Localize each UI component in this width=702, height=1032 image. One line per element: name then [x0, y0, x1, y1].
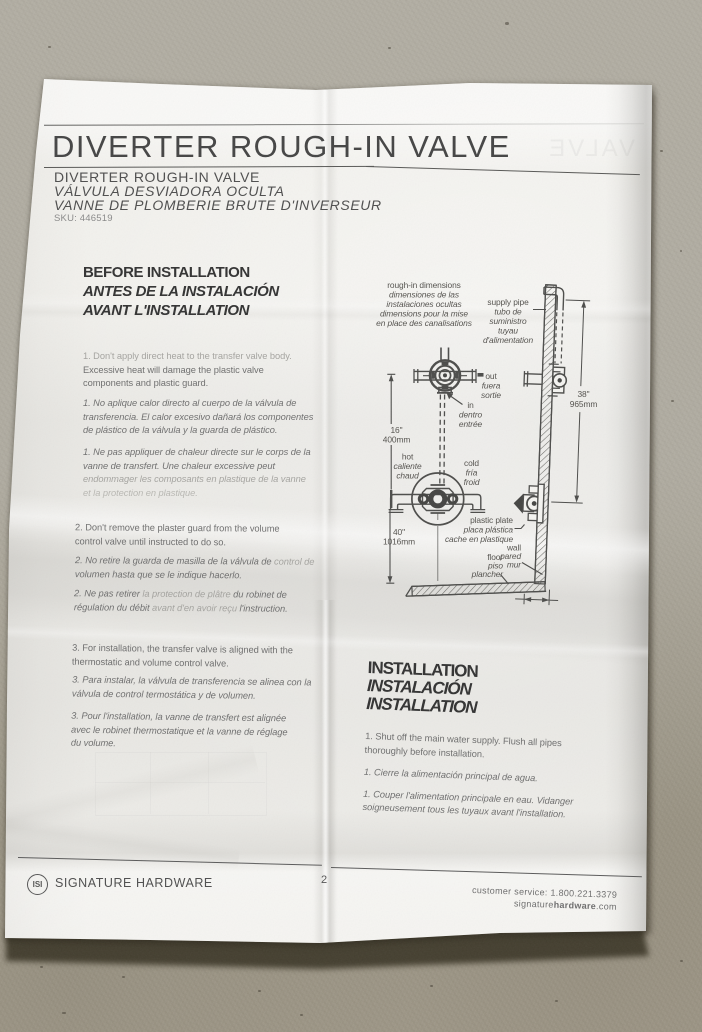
svg-text:instalaciones ocultas: instalaciones ocultas	[386, 299, 462, 309]
svg-text:plastic plate: plastic plate	[470, 515, 513, 525]
svg-text:tubo de: tubo de	[494, 307, 522, 317]
svg-text:hot: hot	[402, 452, 414, 462]
svg-text:suministro: suministro	[489, 316, 527, 326]
svg-text:en place des canalisations: en place des canalisations	[376, 318, 473, 328]
svg-text:chaud: chaud	[396, 471, 419, 481]
svg-text:entrée: entrée	[459, 419, 483, 429]
svg-text:plancher: plancher	[471, 569, 505, 579]
svg-text:d'alimentation: d'alimentation	[483, 335, 533, 345]
svg-text:cache en plastique: cache en plastique	[445, 534, 513, 544]
svg-text:out: out	[485, 371, 497, 381]
svg-text:fuera: fuera	[482, 381, 501, 391]
svg-text:rough-in dimensions: rough-in dimensions	[387, 280, 461, 290]
svg-text:dimensiones de las: dimensiones de las	[389, 290, 460, 300]
svg-text:cold: cold	[464, 458, 479, 468]
svg-text:dimensions pour la mise: dimensions pour la mise	[380, 309, 468, 319]
svg-text:16": 16"	[391, 425, 403, 435]
svg-text:mur: mur	[507, 560, 522, 570]
svg-text:dentro: dentro	[459, 410, 483, 420]
svg-text:400mm: 400mm	[383, 435, 411, 445]
svg-text:in: in	[467, 400, 474, 410]
svg-text:fría: fría	[466, 468, 478, 478]
svg-text:1016mm: 1016mm	[383, 537, 415, 547]
svg-text:38": 38"	[578, 389, 590, 399]
svg-text:caliente: caliente	[393, 461, 422, 471]
svg-text:froid: froid	[464, 477, 480, 487]
svg-text:40": 40"	[393, 527, 405, 537]
svg-text:965mm: 965mm	[570, 399, 598, 409]
svg-text:sortie: sortie	[481, 390, 501, 400]
svg-text:supply pipe: supply pipe	[487, 297, 529, 307]
svg-text:placa plástica: placa plástica	[463, 525, 514, 535]
svg-text:tuyau: tuyau	[498, 326, 518, 336]
